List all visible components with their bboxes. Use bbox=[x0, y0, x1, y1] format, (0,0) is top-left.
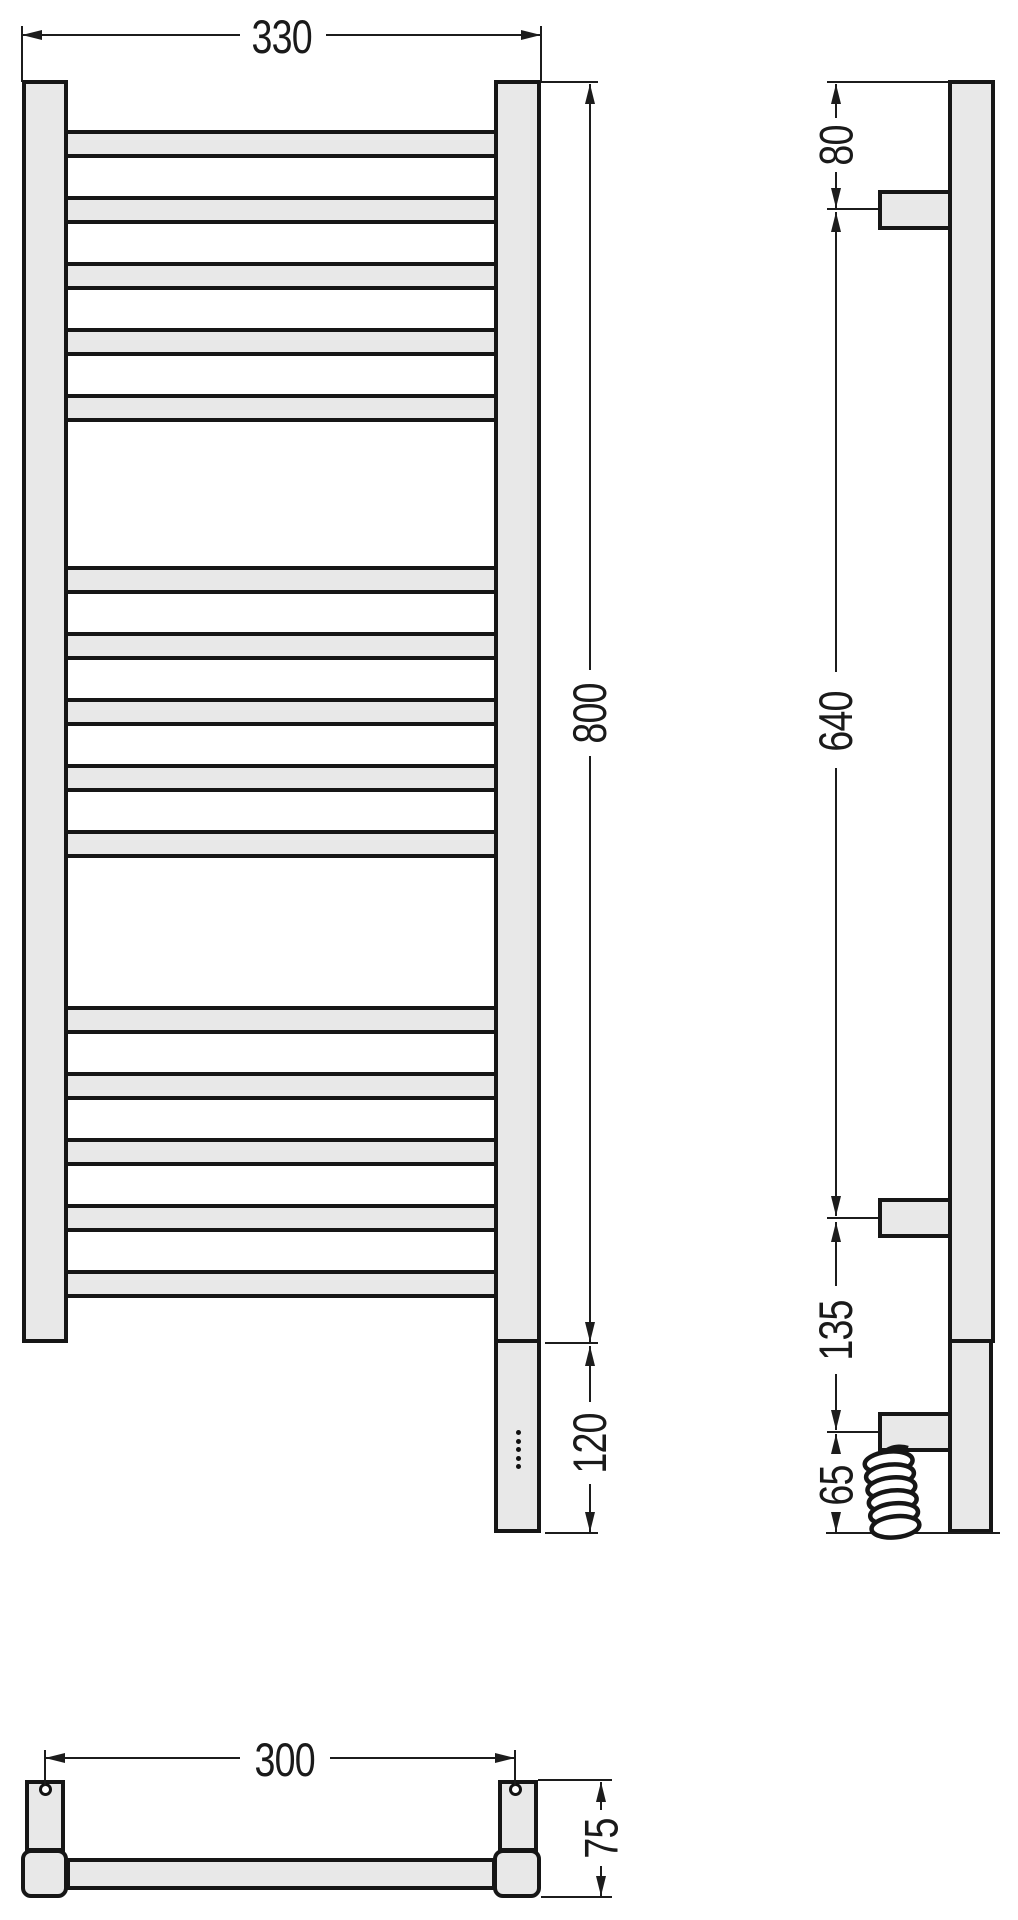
rung bbox=[64, 632, 498, 660]
dimension-arrow-up bbox=[596, 1782, 606, 1802]
dimension-line bbox=[835, 768, 837, 1216]
extension-line bbox=[827, 208, 878, 210]
right-block bbox=[493, 1849, 541, 1898]
dimension-line bbox=[835, 212, 837, 672]
extension-line bbox=[541, 1896, 612, 1898]
dimension-arrow-up bbox=[831, 84, 841, 104]
left-block bbox=[21, 1849, 68, 1898]
dimension-line bbox=[45, 1757, 240, 1759]
rung bbox=[64, 130, 498, 158]
dimension-arrow-left bbox=[22, 30, 42, 40]
extension-line bbox=[545, 1342, 598, 1344]
dimension-arrow-up bbox=[585, 1346, 595, 1366]
dimension-arrow-down bbox=[831, 1512, 841, 1532]
rung bbox=[64, 328, 498, 356]
right-post bbox=[494, 80, 541, 1343]
technical-drawing: 330800120 8064013565 30075 bbox=[0, 0, 1018, 1920]
extension-line bbox=[827, 81, 948, 83]
dimension-line bbox=[326, 34, 541, 36]
dim-mount-spacing-value: 300 bbox=[255, 1732, 315, 1787]
dimension-arrow-up bbox=[831, 212, 841, 232]
side-post bbox=[948, 80, 995, 1343]
dimension-arrow-down bbox=[831, 1410, 841, 1430]
bottom-bracket bbox=[878, 1198, 954, 1238]
dim-mount-spacing: 300 bbox=[225, 1699, 345, 1819]
rung bbox=[64, 1204, 498, 1232]
rung bbox=[64, 394, 498, 422]
dimension-arrow-down bbox=[831, 1196, 841, 1216]
dimension-arrow-down bbox=[831, 188, 841, 208]
dimension-arrow-right bbox=[521, 30, 541, 40]
dimension-arrow-left bbox=[45, 1753, 65, 1763]
control-dot bbox=[516, 1456, 521, 1461]
heater-box-side bbox=[948, 1339, 993, 1533]
top-bracket bbox=[878, 190, 954, 230]
rung bbox=[64, 830, 498, 858]
dimension-arrow-down bbox=[585, 1322, 595, 1342]
rung bbox=[64, 764, 498, 792]
dim-depth-value: 75 bbox=[574, 1818, 629, 1858]
control-dot bbox=[516, 1430, 521, 1435]
extension-line bbox=[538, 1779, 612, 1781]
dimension-arrow-right bbox=[495, 1753, 515, 1763]
dimension-arrow-down bbox=[585, 1512, 595, 1532]
rung bbox=[64, 698, 498, 726]
rung bbox=[64, 196, 498, 224]
extension-line bbox=[827, 1217, 878, 1219]
rung bbox=[64, 1072, 498, 1100]
dimension-line bbox=[22, 34, 240, 36]
rung bbox=[64, 1270, 498, 1298]
dimension-arrow-up bbox=[585, 84, 595, 104]
control-dot bbox=[516, 1439, 521, 1444]
rung bbox=[64, 1138, 498, 1166]
extension-line bbox=[541, 81, 598, 83]
dimension-arrow-up bbox=[831, 1434, 841, 1454]
dimension-line bbox=[330, 1757, 515, 1759]
dimension-arrow-down bbox=[596, 1876, 606, 1896]
dimension-line bbox=[589, 756, 591, 1342]
rung bbox=[64, 566, 498, 594]
heater-box-front bbox=[494, 1339, 541, 1533]
power-cord-coil-icon bbox=[862, 1444, 932, 1542]
extension-line bbox=[545, 1532, 598, 1534]
dimension-line bbox=[589, 84, 591, 670]
left-post bbox=[22, 80, 68, 1343]
extension-line bbox=[827, 1431, 878, 1433]
rung bbox=[64, 262, 498, 290]
dimension-arrow-up bbox=[831, 1222, 841, 1242]
crossbar bbox=[66, 1858, 496, 1890]
rung bbox=[64, 1006, 498, 1034]
